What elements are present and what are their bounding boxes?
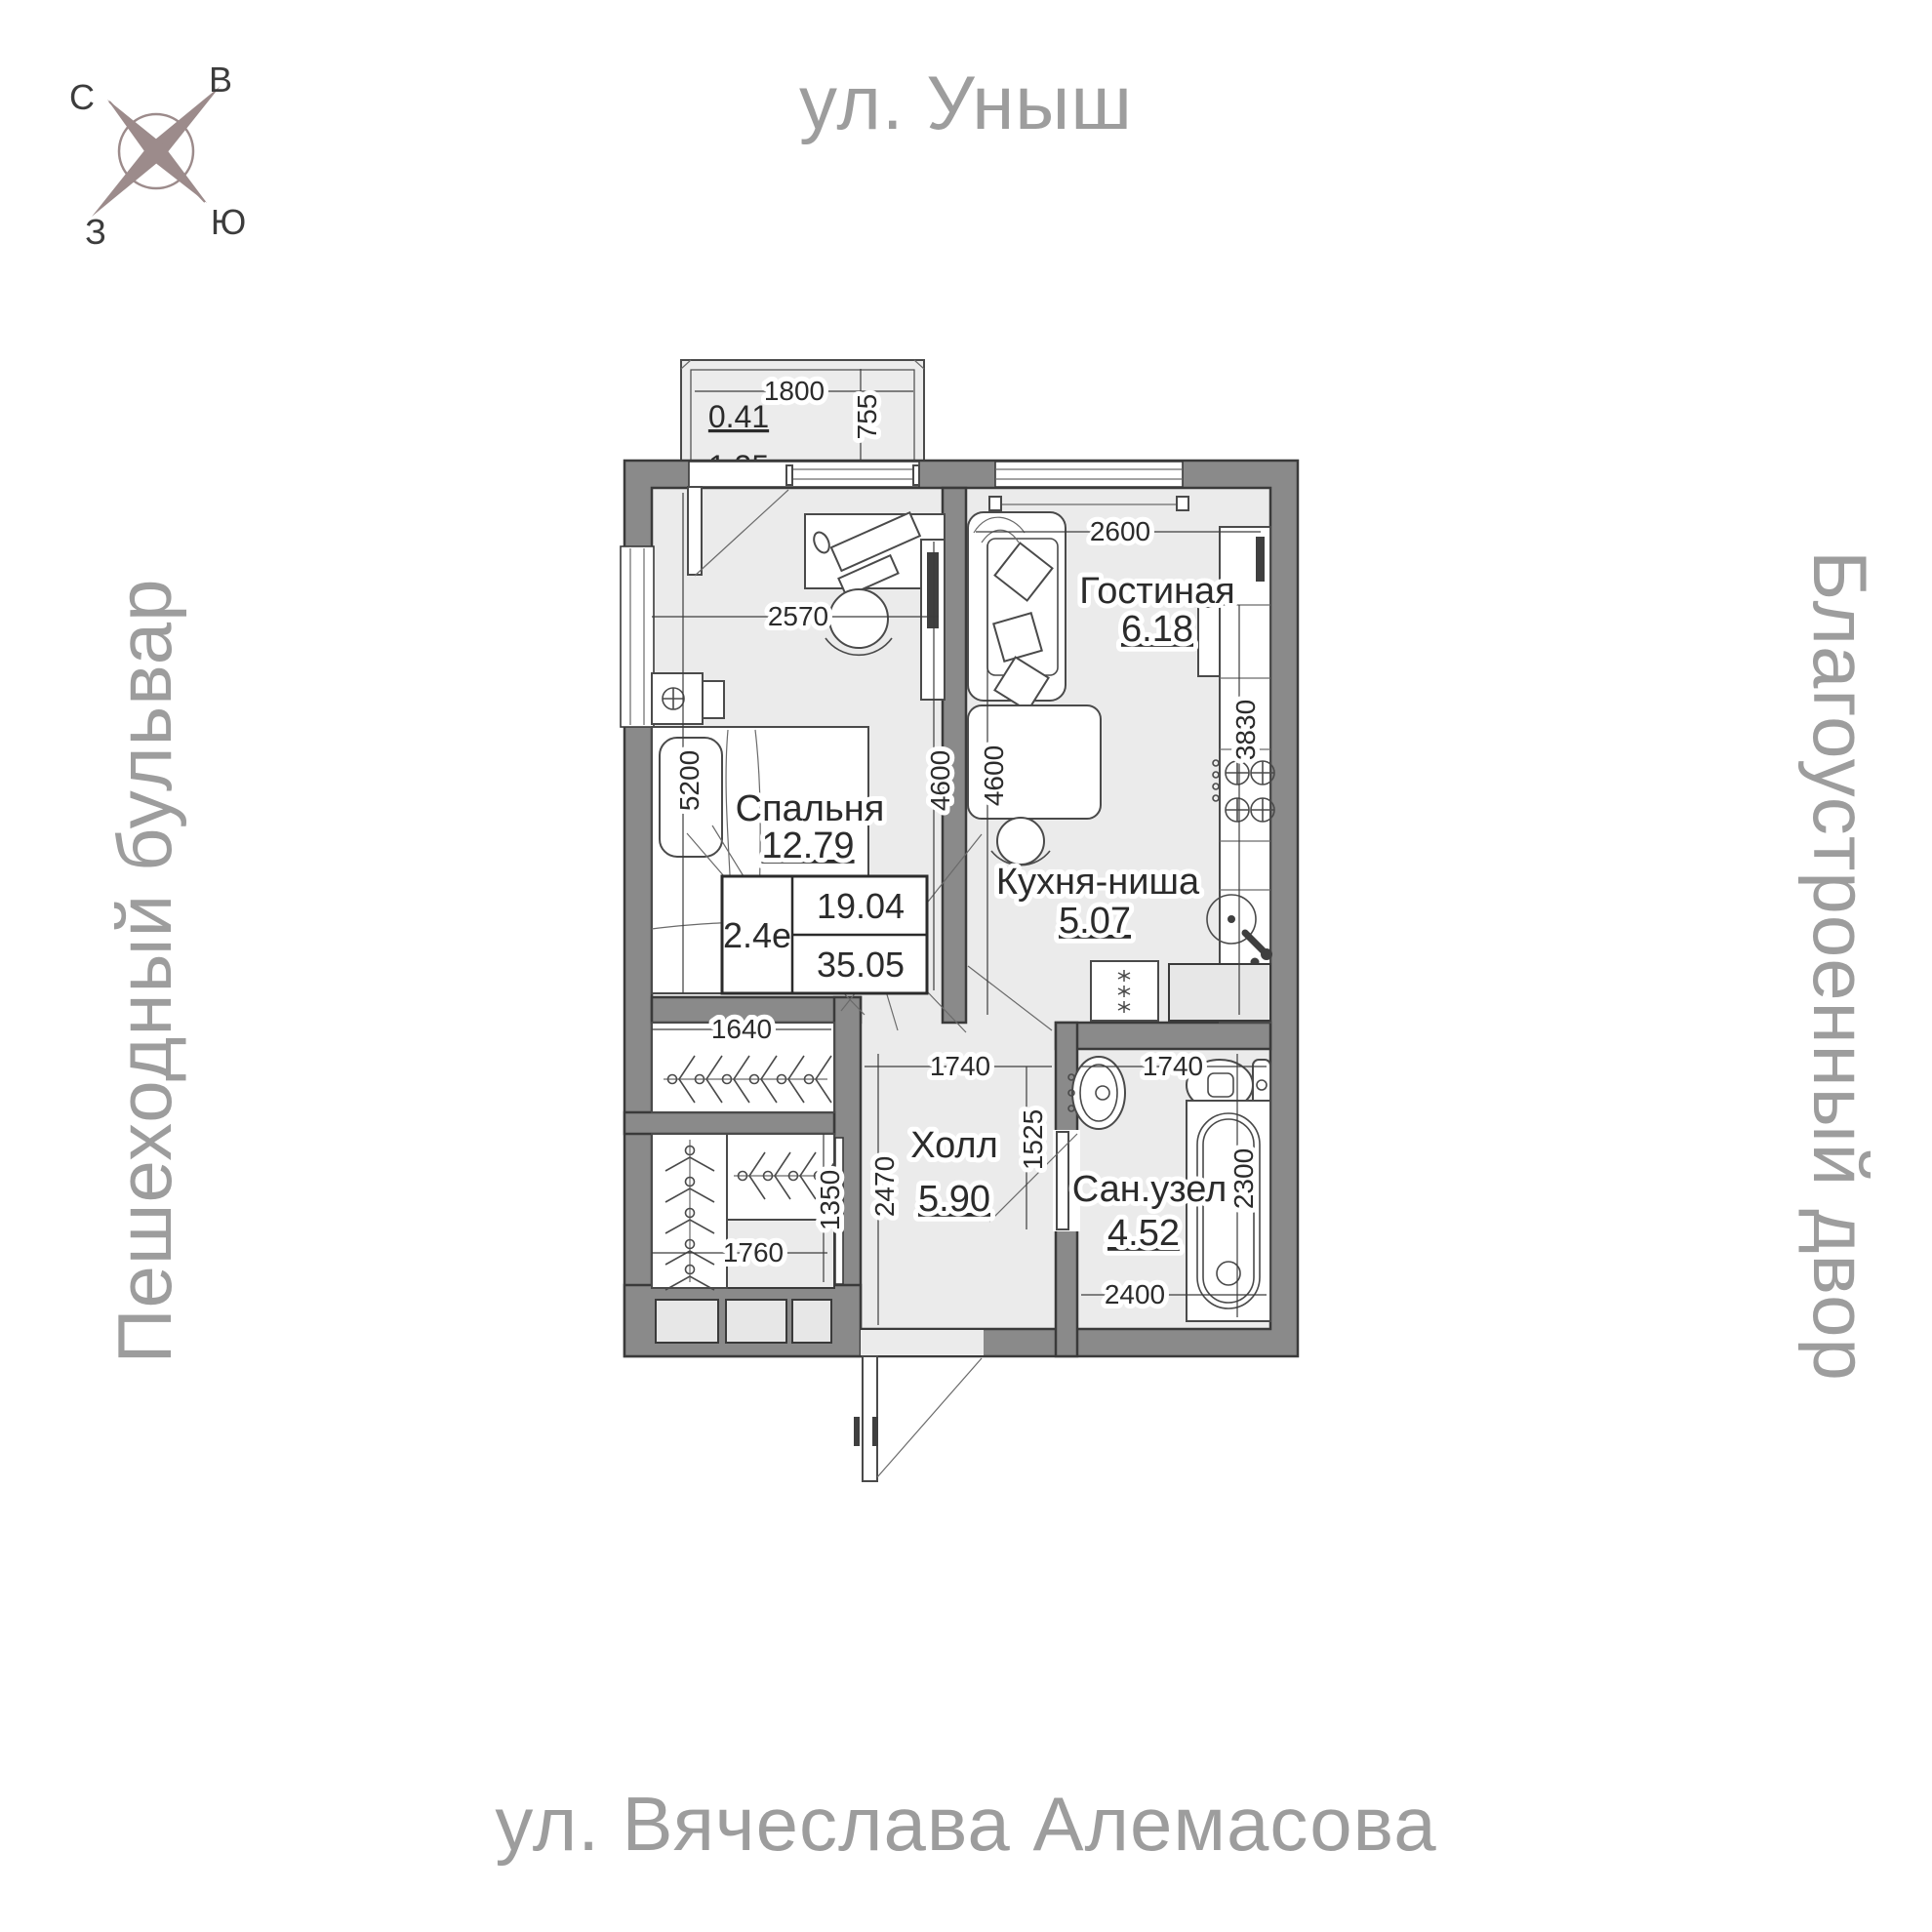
compass-south-label: Ю	[211, 202, 246, 242]
dim-bath-length: 2300	[1228, 1148, 1259, 1209]
floor-plan-canvas: С В З Ю ул. Уныш ул. Вячеслава Алемасова…	[0, 0, 1932, 1932]
compass-north-label: С	[69, 77, 95, 117]
room-kitchen-area: 5.07	[1059, 901, 1131, 942]
dim-bath-bottom-width: 2400	[1105, 1279, 1165, 1309]
desk-chair	[829, 589, 888, 648]
dim-kitchen-side: 3830	[1230, 700, 1261, 760]
dim-living-width: 2600	[1090, 516, 1150, 546]
room-kitchen-label: Кухня-ниша	[996, 862, 1200, 903]
duct-shaft	[1169, 964, 1270, 1021]
bathtub-icon	[1187, 1101, 1270, 1321]
dim-hall-niche: 1525	[1018, 1109, 1048, 1170]
room-living-label: Гостиная	[1079, 571, 1235, 612]
dim-balcony-width: 1800	[764, 376, 825, 406]
dim-bedroom-width: 2570	[768, 601, 828, 631]
lamp-icon	[663, 688, 684, 709]
dim-bedroom-side: 4600	[925, 750, 955, 811]
dim-closet-top-width: 1640	[711, 1014, 772, 1044]
dim-bath-width: 1740	[1143, 1051, 1203, 1081]
compass-west-label: З	[85, 212, 106, 252]
room-living-area: 6.18	[1121, 609, 1193, 650]
dim-hall-depth: 2470	[869, 1156, 900, 1217]
street-label-left: Пешеходный бульвар	[101, 578, 187, 1363]
dim-closet-height: 1350	[815, 1170, 845, 1230]
entrance-opening	[861, 1330, 984, 1355]
compass-rose: С В З Ю	[69, 60, 246, 252]
bathroom-door-leaf	[1057, 1132, 1068, 1229]
room-hall-area: 5.90	[918, 1179, 990, 1220]
dim-balcony-depth: 755	[852, 394, 882, 440]
dim-living-side: 4600	[979, 745, 1009, 806]
room-bedroom-label: Спальня	[736, 788, 885, 829]
living-window	[995, 462, 1183, 487]
room-bedroom-area: 12.79	[761, 825, 854, 866]
apartment-living-area: 19.04	[817, 886, 905, 926]
dining-chair	[997, 818, 1044, 865]
dim-hall-width: 1740	[930, 1051, 990, 1081]
street-label-top: ул. Уныш	[799, 60, 1133, 145]
room-hall-label: Холл	[910, 1125, 998, 1166]
street-label-right: Благоустроенный двор	[1797, 550, 1883, 1382]
room-bath-area: 4.52	[1107, 1213, 1180, 1254]
dim-closet-bottom-width: 1760	[723, 1237, 784, 1268]
apartment-total-area: 35.05	[817, 945, 905, 985]
balcony-door-leaf	[688, 487, 702, 575]
apartment-type: 2.4е	[723, 915, 791, 955]
room-bath-label: Сан.узел	[1072, 1169, 1228, 1210]
balcony-area-reduced: 0.41	[708, 399, 769, 434]
street-label-bottom: ул. Вячеслава Алемасова	[495, 1781, 1436, 1867]
dim-bedroom-length: 5200	[674, 750, 704, 811]
compass-east-label: В	[209, 60, 232, 100]
